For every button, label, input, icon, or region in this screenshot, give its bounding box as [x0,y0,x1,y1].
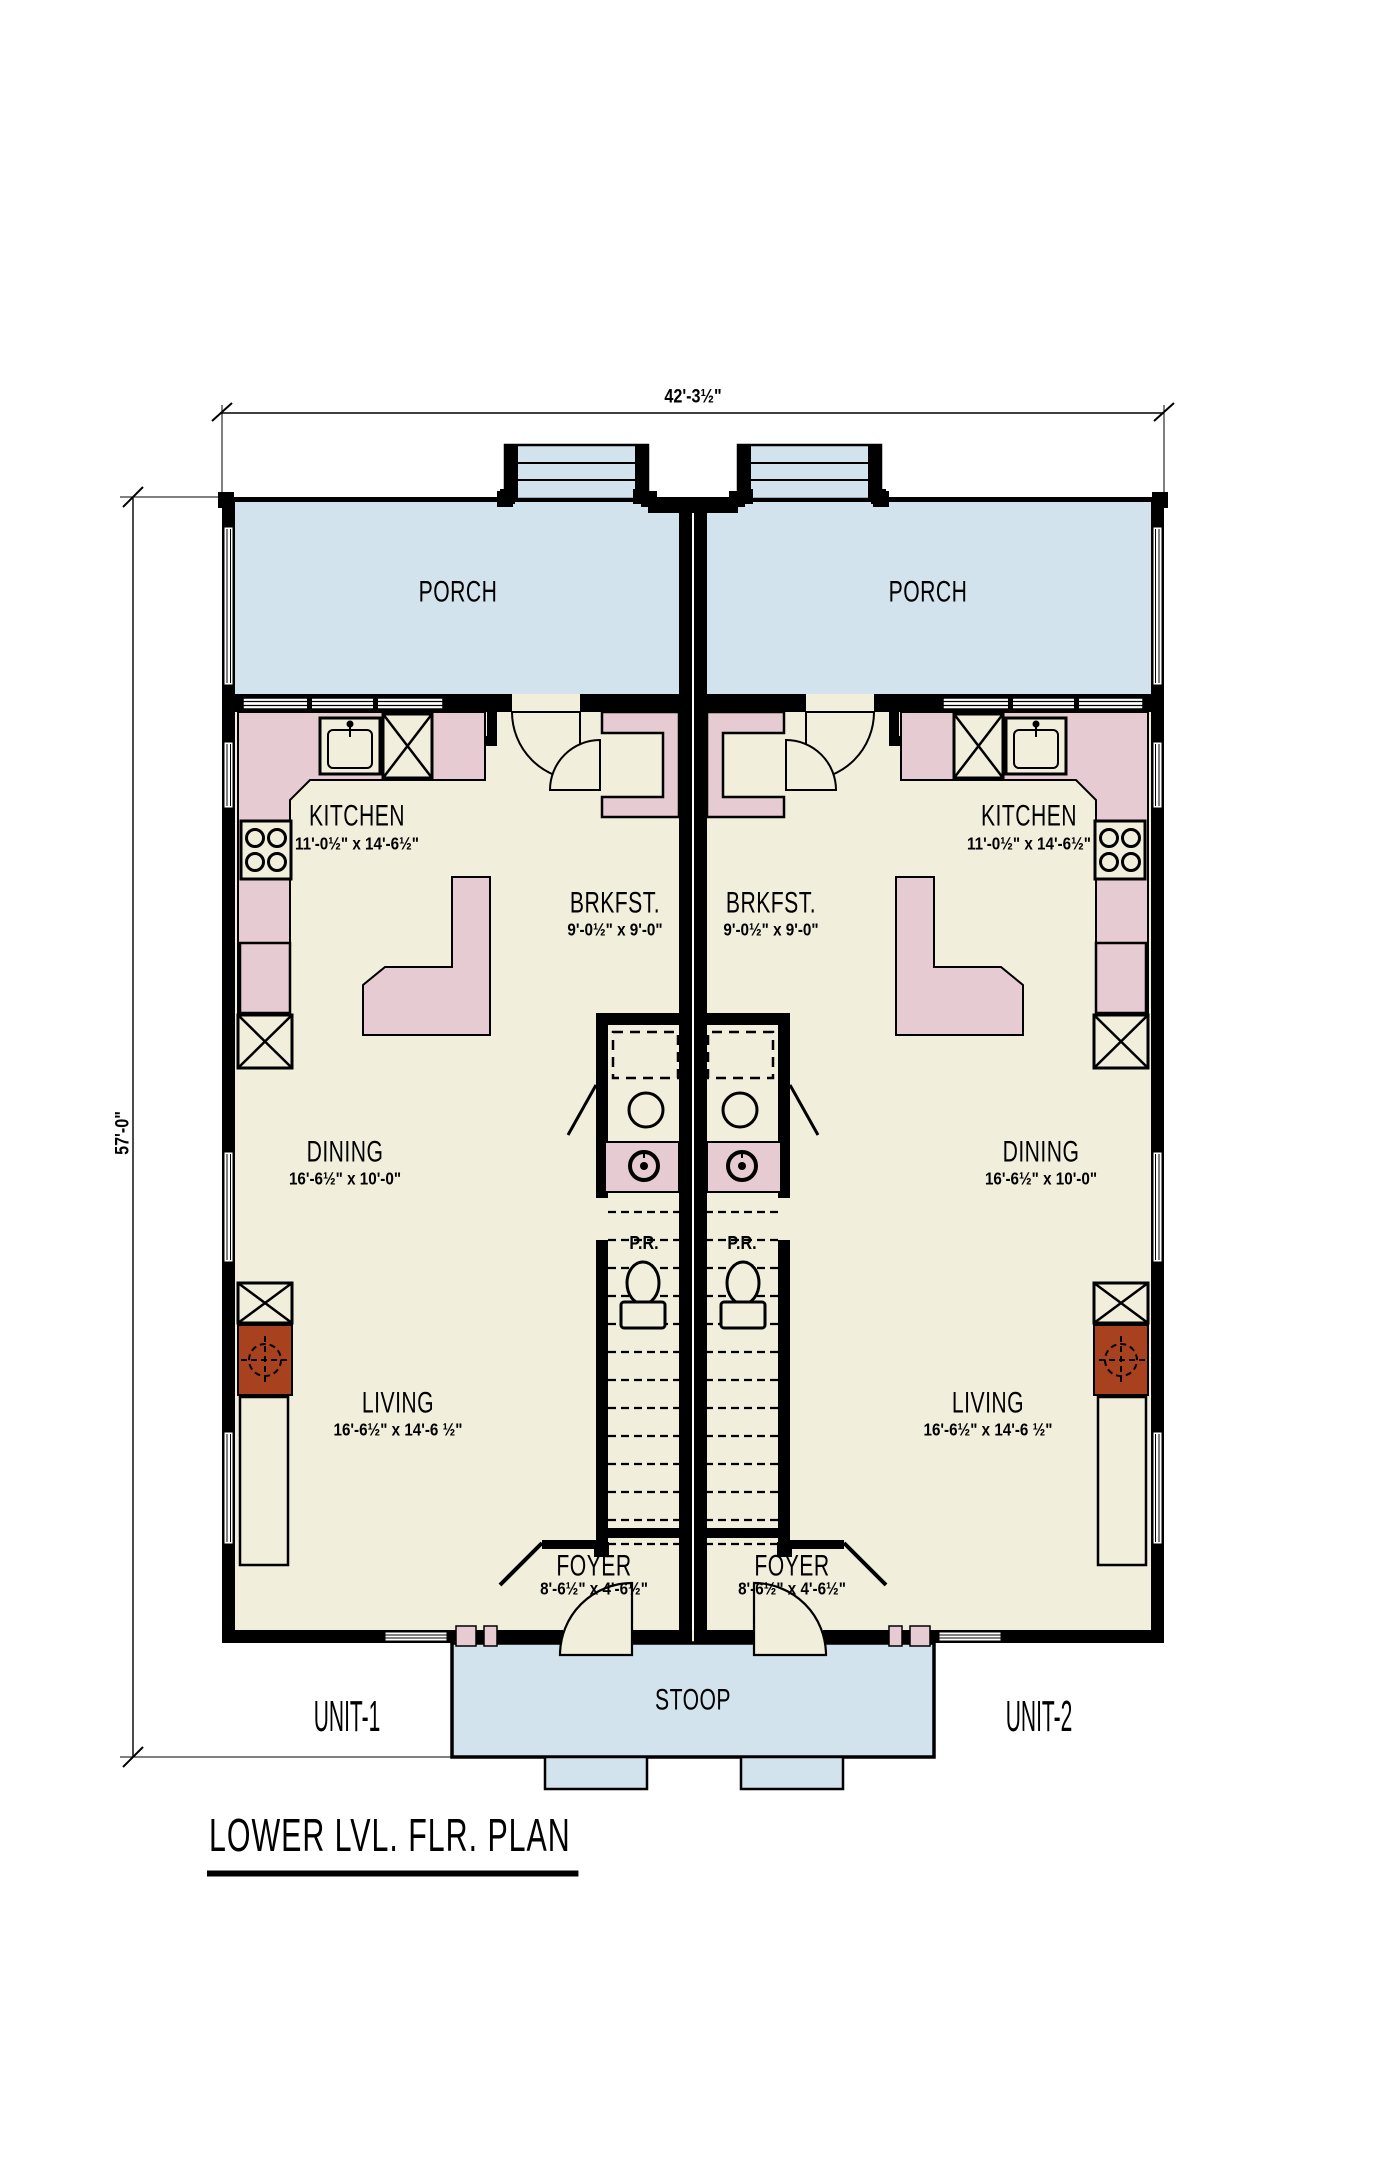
kitchen-name-2: KITCHEN [981,801,1077,830]
dining-name-1: DINING [307,1137,384,1166]
living-size-2: 16'-6½" x 14'-6 ½" [924,1422,1053,1440]
living-name-2: LIVING [952,1388,1024,1417]
kitchen-name-1: KITCHEN [309,801,405,830]
kitchen-size-1: 11'-0½" x 14'-6½" [295,836,419,854]
overall-depth-dim: 57'-0" [112,1111,132,1155]
brkfst-size-2: 9'-0½" x 9'-0" [723,922,818,940]
foyer-size-2: 8'-6½" x 4'-6½" [738,1581,846,1599]
living-size-1: 16'-6½" x 14'-6 ½" [334,1422,463,1440]
dining-name-2: DINING [1003,1137,1080,1166]
porch-label-1: PORCH [419,577,498,606]
floor-plan-sheet: 42'-3½" 57'-0" PORCH KITCHEN 11'-0½" x 1… [0,0,1398,2160]
unit2-label: UNIT-2 [1006,1696,1073,1740]
dining-size-1: 16'-6½" x 10'-0" [289,1171,401,1189]
brkfst-size-1: 9'-0½" x 9'-0" [567,922,662,940]
plan-title: LOWER LVL. FLR. PLAN [207,1812,579,1877]
brkfst-name-2: BRKFST. [726,888,816,917]
kitchen-size-2: 11'-0½" x 14'-6½" [967,836,1091,854]
foyer-size-1: 8'-6½" x 4'-6½" [540,1581,648,1599]
overall-width-dim: 42'-3½" [664,386,721,406]
porch-label-2: PORCH [889,577,968,606]
foyer-name-1: FOYER [556,1551,631,1580]
stoop [452,1643,934,1789]
powder-room-label-1: P.R. [629,1234,658,1253]
stoop-label: STOOP [655,1685,731,1714]
dining-size-2: 16'-6½" x 10'-0" [985,1171,1097,1189]
powder-room-label-2: P.R. [727,1234,756,1253]
brkfst-name-1: BRKFST. [570,888,660,917]
foyer-name-2: FOYER [754,1551,829,1580]
living-name-1: LIVING [362,1388,434,1417]
unit1-label: UNIT-1 [314,1696,381,1740]
